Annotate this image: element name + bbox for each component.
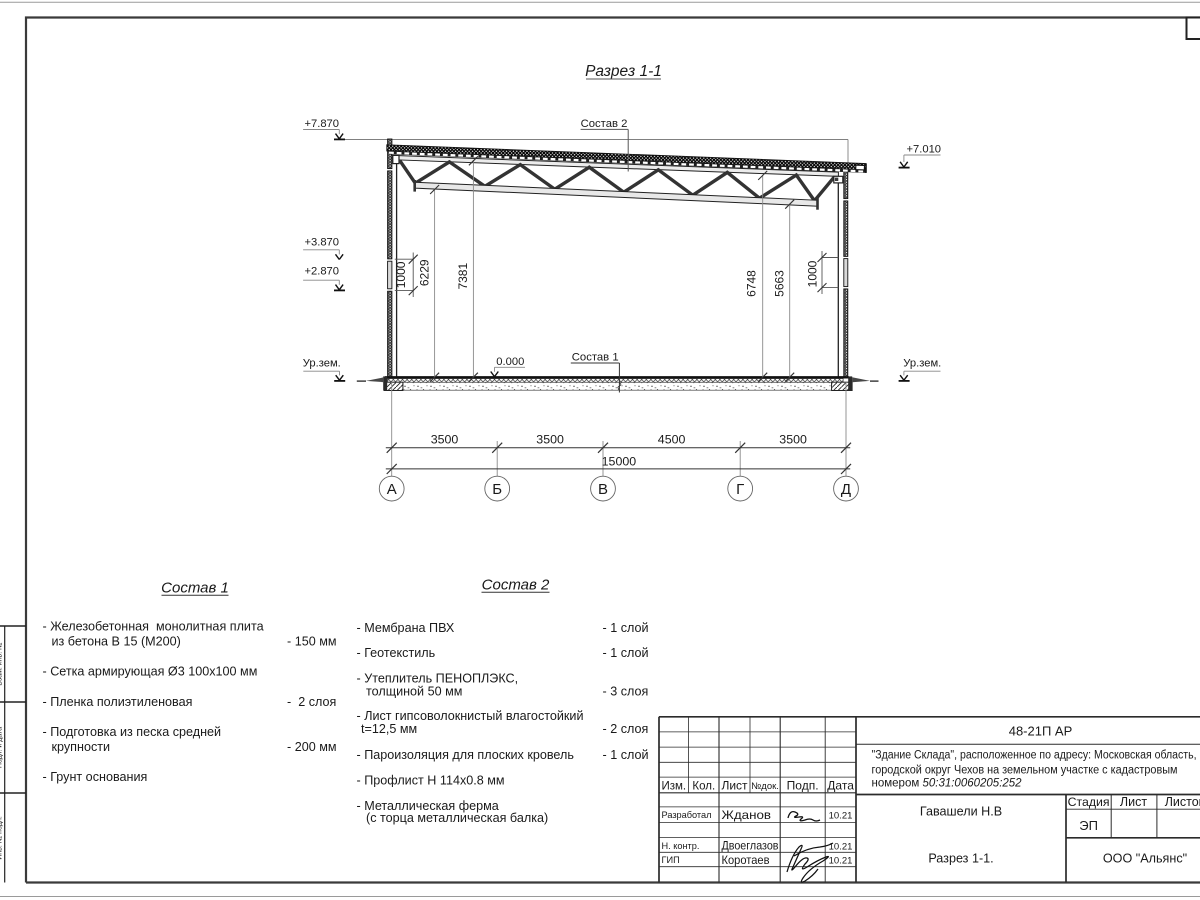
- svg-text:ГИП: ГИП: [662, 855, 680, 865]
- svg-text:Изм.: Изм.: [661, 780, 686, 792]
- svg-text:Г: Г: [736, 481, 744, 498]
- svg-text:Коротаев: Коротаев: [722, 854, 770, 867]
- svg-text:t=12,5 мм: t=12,5 мм: [361, 722, 417, 736]
- svg-text:- Профлист Н 114х0.8 мм: - Профлист Н 114х0.8 мм: [357, 774, 505, 788]
- svg-text:- Лист гипсоволокнистый влагос: - Лист гипсоволокнистый влагостойкий: [357, 709, 584, 723]
- svg-text:- Сетка армирующая Ø3 100х100: - Сетка армирующая Ø3 100х100 мм: [43, 665, 258, 679]
- svg-text:Состав 1: Состав 1: [161, 579, 229, 596]
- svg-text:- 2 слоя: - 2 слоя: [287, 695, 336, 709]
- svg-text:толщиной 50 мм: толщиной 50 мм: [366, 684, 462, 698]
- svg-text:1000: 1000: [394, 261, 408, 288]
- svg-text:5663: 5663: [773, 270, 787, 297]
- svg-text:+2.870: +2.870: [304, 266, 339, 278]
- svg-text:Разрез 1-1: Разрез 1-1: [585, 63, 662, 80]
- svg-text:3500: 3500: [536, 433, 564, 447]
- svg-text:Лист: Лист: [1120, 795, 1147, 809]
- svg-text:- Подготовка из песка средней: - Подготовка из песка средней: [43, 725, 222, 739]
- svg-text:Листов: Листов: [1165, 795, 1200, 809]
- svg-text:Разрез 1-1.: Разрез 1-1.: [928, 851, 993, 865]
- svg-text:ООО "Альянс": ООО "Альянс": [1103, 851, 1187, 865]
- svg-text:15000: 15000: [602, 454, 637, 468]
- svg-text:- 3 слоя: - 3 слоя: [603, 684, 649, 698]
- svg-text:7381: 7381: [456, 263, 470, 290]
- svg-text:Лист: Лист: [721, 778, 748, 792]
- svg-text:Ур.зем.: Ур.зем.: [303, 358, 341, 370]
- svg-text:Разработал: Разработал: [662, 810, 712, 820]
- svg-text:10.21: 10.21: [829, 856, 853, 867]
- svg-text:ЭП: ЭП: [1079, 818, 1098, 833]
- svg-text:Ур.зем.: Ур.зем.: [903, 358, 941, 370]
- svg-text:Двоеглазов: Двоеглазов: [722, 839, 779, 853]
- svg-text:Кол.: Кол.: [692, 780, 715, 792]
- svg-text:(с торца металлическая балка): (с торца металлическая балка): [366, 811, 548, 825]
- svg-text:№док.: №док.: [751, 781, 779, 792]
- svg-text:- 1 слой: - 1 слой: [603, 748, 649, 762]
- svg-text:4500: 4500: [658, 433, 686, 447]
- svg-text:Дата: Дата: [827, 778, 854, 792]
- svg-text:- Геотекстиль: - Геотекстиль: [357, 646, 436, 660]
- svg-text:- Мембрана ПВХ: - Мембрана ПВХ: [357, 621, 455, 635]
- svg-text:А: А: [387, 481, 397, 498]
- svg-text:48-21П АР: 48-21П АР: [1009, 723, 1073, 738]
- svg-text:- Пароизоляция для плоских кро: - Пароизоляция для плоских кровель: [357, 748, 575, 762]
- svg-text:Состав 2: Состав 2: [482, 576, 550, 593]
- svg-text:- 1 слой: - 1 слой: [603, 621, 649, 635]
- svg-text:- Пленка полиэтиленовая: - Пленка полиэтиленовая: [43, 695, 193, 709]
- svg-text:городской округ Чехов на земел: городской округ Чехов на земельном участ…: [872, 764, 1178, 776]
- svg-text:Стадия: Стадия: [1068, 795, 1110, 809]
- svg-text:- 150 мм: - 150 мм: [287, 634, 337, 648]
- svg-text:Взам. инв. №: Взам. инв. №: [0, 642, 4, 685]
- svg-text:Жданов: Жданов: [722, 808, 772, 822]
- svg-text:Д: Д: [841, 481, 851, 498]
- svg-text:6229: 6229: [417, 259, 431, 286]
- svg-text:- Железобетонная монолитная п: - Железобетонная монолитная плита: [43, 619, 264, 633]
- svg-text:"Здание Склада", расположенное: "Здание Склада", расположенное по адресу…: [872, 750, 1197, 762]
- svg-text:Подп. и дата: Подп. и дата: [0, 727, 4, 768]
- svg-text:из бетона В 15 (М200): из бетона В 15 (М200): [52, 634, 181, 648]
- svg-text:6748: 6748: [744, 270, 758, 297]
- svg-text:- 2 слоя: - 2 слоя: [603, 722, 649, 736]
- svg-text:- 200 мм: - 200 мм: [287, 740, 337, 754]
- svg-text:Б: Б: [492, 481, 502, 498]
- svg-text:- Грунт основания: - Грунт основания: [43, 770, 148, 784]
- svg-text:1000: 1000: [806, 260, 820, 287]
- svg-text:номером 50:31:0060205:252: номером 50:31:0060205:252: [872, 778, 1023, 790]
- svg-text:Состав 1: Состав 1: [572, 352, 619, 364]
- svg-text:крупности: крупности: [52, 740, 111, 754]
- svg-text:В: В: [598, 481, 608, 498]
- svg-text:0.000: 0.000: [496, 356, 524, 368]
- svg-text:Подп.: Подп.: [787, 778, 819, 792]
- svg-text:Гавашели Н.В: Гавашели Н.В: [920, 805, 1002, 819]
- svg-text:Н. контр.: Н. контр.: [662, 841, 700, 851]
- svg-text:+7.010: +7.010: [907, 143, 942, 155]
- svg-text:- 1 слой: - 1 слой: [603, 646, 649, 660]
- svg-text:+7.870: +7.870: [304, 118, 339, 130]
- svg-text:3500: 3500: [431, 433, 459, 447]
- svg-text:3500: 3500: [779, 433, 807, 447]
- svg-text:+3.870: +3.870: [304, 236, 339, 248]
- svg-text:Состав 2: Состав 2: [581, 118, 628, 130]
- svg-text:Инв. № подл.: Инв. № подл.: [0, 816, 4, 860]
- svg-text:10.21: 10.21: [829, 811, 853, 822]
